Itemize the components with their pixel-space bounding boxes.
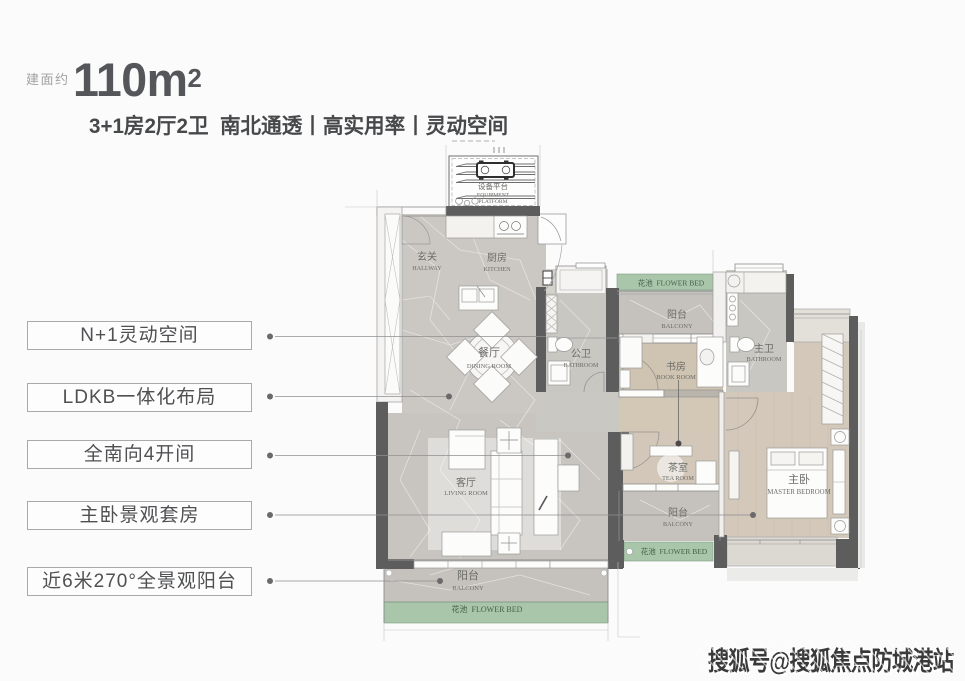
svg-text:主卫: 主卫 [754,343,774,355]
svg-text:KITCHEN: KITCHEN [483,266,511,273]
svg-text:TEA ROOM: TEA ROOM [662,475,694,482]
svg-text:EQUIPMENT: EQUIPMENT [477,193,510,199]
svg-text:HALLWAY: HALLWAY [412,265,442,272]
svg-text:BATHROOM: BATHROOM [747,356,782,363]
svg-text:阳台: 阳台 [667,308,687,321]
svg-text:主卧: 主卧 [788,473,810,486]
svg-text:厨房: 厨房 [487,251,507,264]
svg-text:公卫: 公卫 [571,349,591,360]
svg-text:MASTER BEDROOM: MASTER BEDROOM [767,489,830,496]
svg-text:花池 FLOWER BED: 花池 FLOWER BED [641,546,708,556]
svg-text:BALCONY: BALCONY [661,323,693,330]
svg-text:BOOK ROOM: BOOK ROOM [656,374,696,381]
svg-text:茶室: 茶室 [668,461,688,474]
svg-text:BALCONY: BALCONY [663,521,693,528]
svg-text:客厅: 客厅 [456,476,476,489]
svg-text:玄关: 玄关 [417,250,437,263]
svg-text:BATHROOM: BATHROOM [564,362,599,369]
svg-text:LIVING ROOM: LIVING ROOM [444,490,488,497]
svg-text:花池 FLOWER BED: 花池 FLOWER BED [452,604,523,614]
svg-text:BALCONY: BALCONY [452,585,484,592]
svg-text:餐厅: 餐厅 [478,345,500,359]
svg-text:花池 FLOWER BED: 花池 FLOWER BED [638,278,705,288]
svg-text:设备平台: 设备平台 [478,181,508,191]
svg-text:阳台: 阳台 [457,568,479,582]
svg-text:DINING ROOM: DINING ROOM [467,363,511,370]
svg-text:阳台: 阳台 [668,506,688,519]
svg-text:书房: 书房 [666,360,686,373]
svg-text:PLATFORM: PLATFORM [478,199,507,205]
